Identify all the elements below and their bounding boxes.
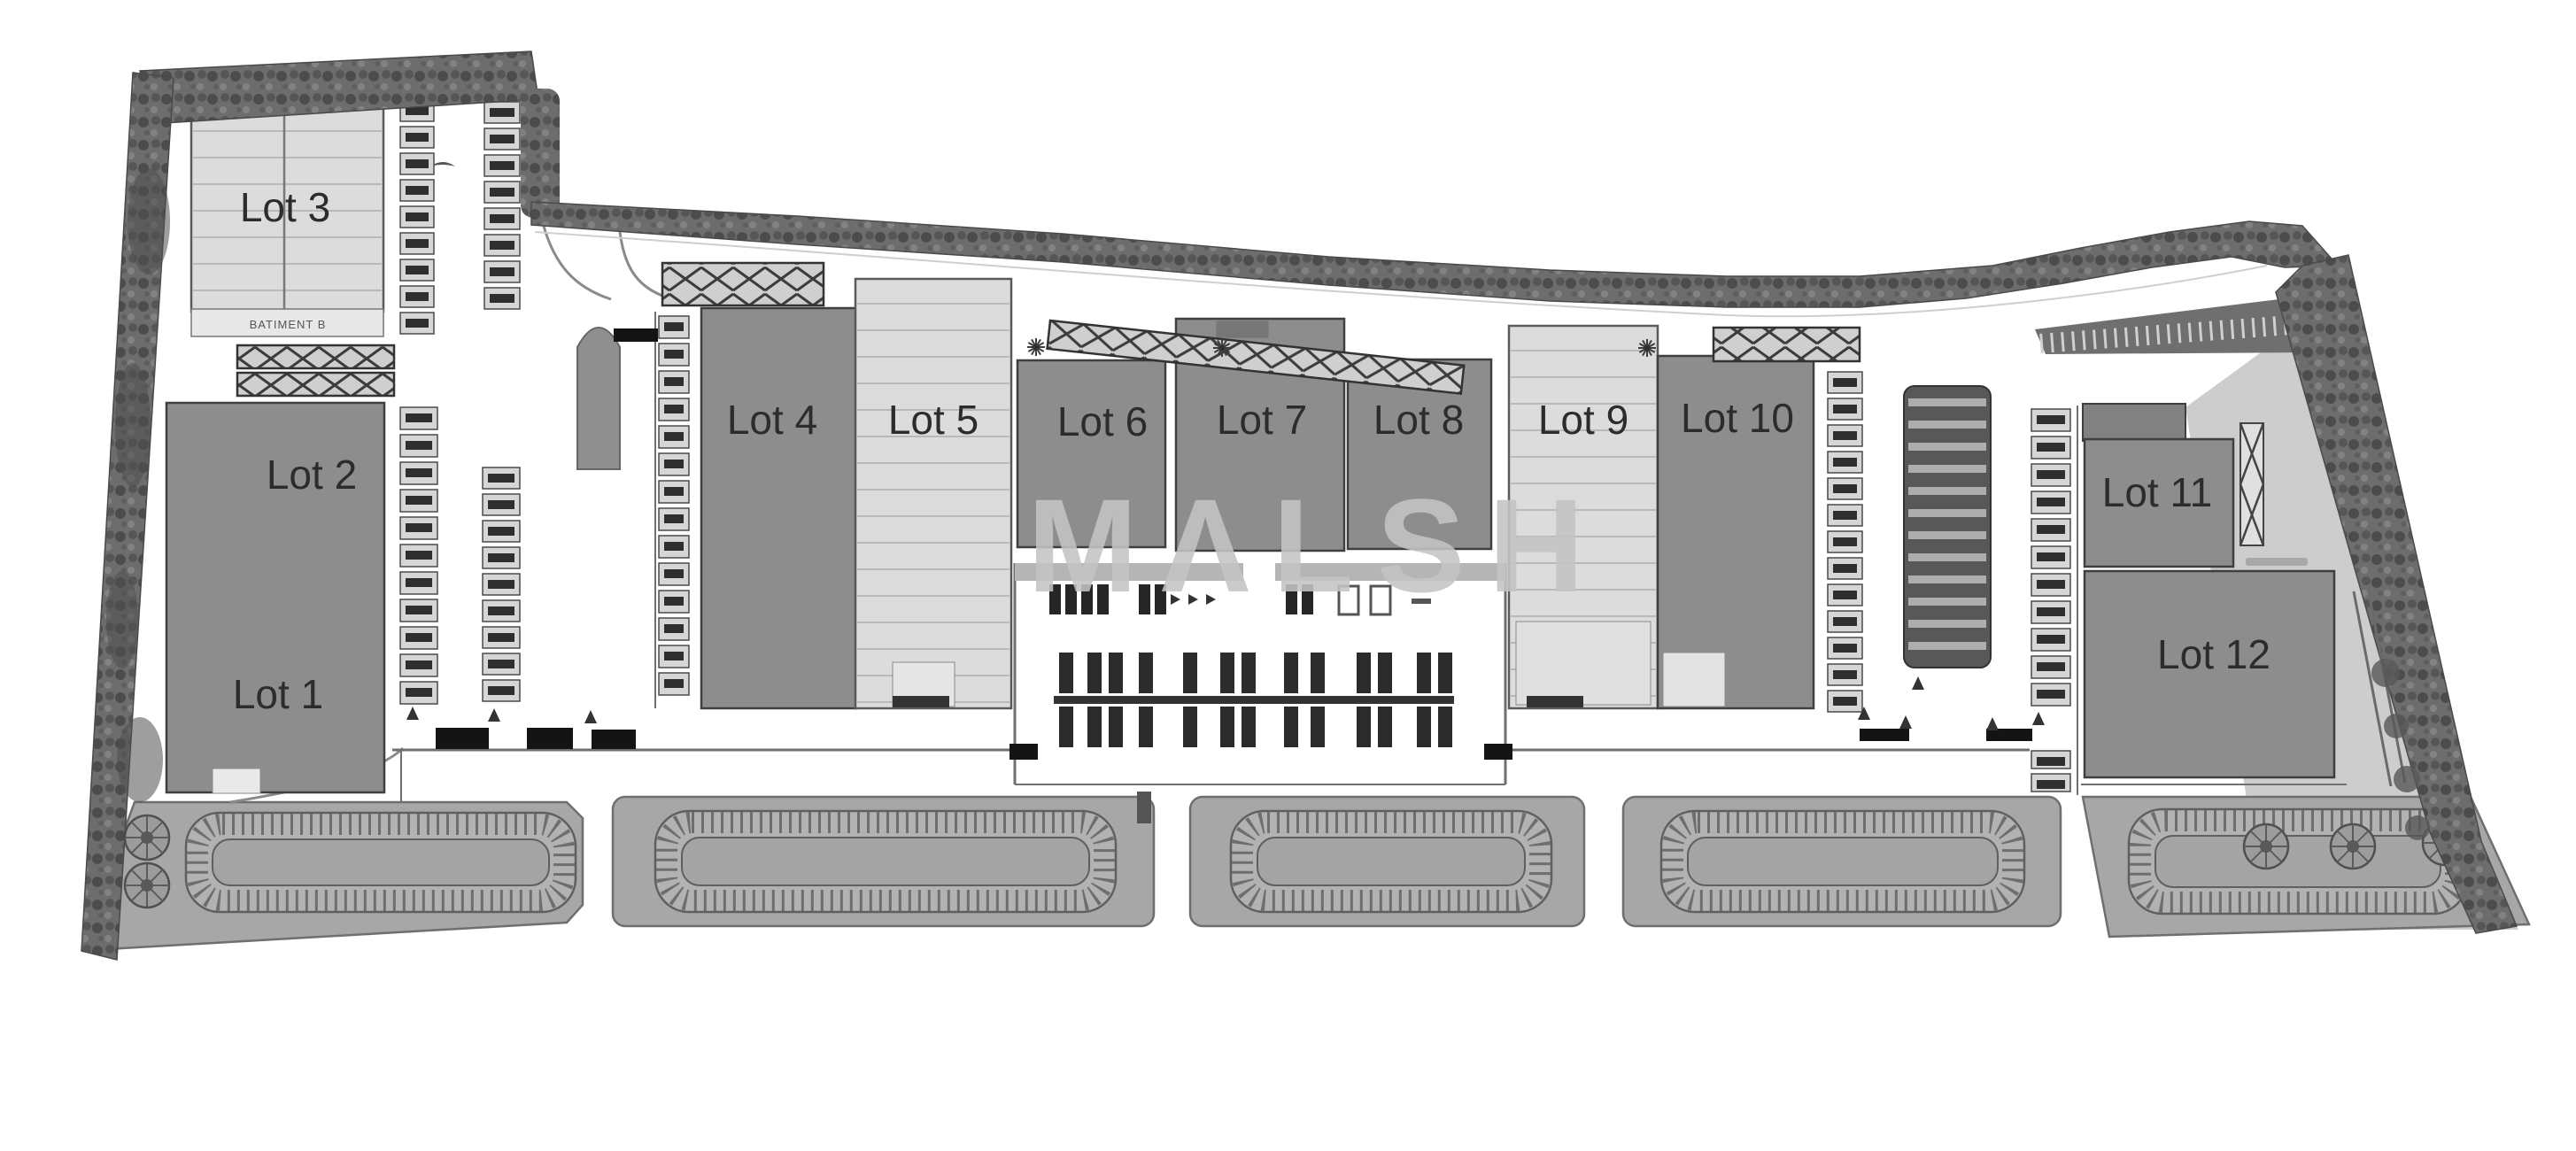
lot-label: Lot 5 xyxy=(888,397,979,443)
parked-car xyxy=(1833,670,1857,679)
small-stall xyxy=(1220,653,1234,693)
parked-car xyxy=(664,350,684,359)
small-stall xyxy=(1242,653,1256,693)
lot-label: Lot 2 xyxy=(267,452,357,498)
courtyard-mark xyxy=(1137,792,1151,823)
tree-trunk xyxy=(1644,345,1650,351)
dock-block xyxy=(1986,729,2032,741)
small-stall xyxy=(1417,653,1431,693)
tree-trunk xyxy=(1219,345,1225,351)
parked-car xyxy=(406,266,429,274)
parking-column xyxy=(400,407,437,704)
tree-blob xyxy=(2384,714,2409,738)
truss-canopy xyxy=(662,263,824,305)
small-stall xyxy=(1378,707,1392,747)
parked-car xyxy=(664,405,684,413)
island-inner xyxy=(213,839,549,885)
dock-block xyxy=(436,728,489,749)
parked-car xyxy=(406,578,432,587)
tree-blob xyxy=(115,363,151,487)
tree-blob xyxy=(2405,815,2430,840)
double-column-stall xyxy=(1908,531,1986,539)
parking-pad xyxy=(1190,797,1584,926)
pine-tree-icon xyxy=(1912,676,1924,690)
parked-car xyxy=(1833,458,1857,467)
parked-car xyxy=(406,413,432,422)
double-column-stall xyxy=(1908,465,1986,473)
double-column-stall xyxy=(1908,398,1986,406)
double-column-stall xyxy=(1908,575,1986,583)
double-column-stall xyxy=(1908,487,1986,495)
parked-car xyxy=(1833,644,1857,653)
island-inner xyxy=(1257,838,1525,885)
tree-icon xyxy=(1027,338,1045,356)
lot-5 xyxy=(855,279,1011,708)
small-stall xyxy=(1220,707,1234,747)
tree-blob xyxy=(521,89,560,218)
truss-canopy xyxy=(1713,328,1860,361)
parked-car xyxy=(1833,697,1857,706)
small-stall xyxy=(1109,653,1123,693)
tree-blob xyxy=(128,168,170,274)
parked-car xyxy=(488,553,514,562)
tree-trunk xyxy=(1033,344,1039,350)
parked-car xyxy=(406,441,432,450)
lot-label: Lot 1 xyxy=(233,671,323,717)
parked-car xyxy=(2037,552,2065,561)
pine-tree-icon xyxy=(2032,712,2045,725)
parking-column xyxy=(2031,751,2070,792)
parked-car xyxy=(488,633,514,642)
stall-spine xyxy=(1054,696,1454,704)
parked-car xyxy=(2037,498,2065,506)
pine-tree-icon xyxy=(1899,715,1912,729)
double-column-stall xyxy=(1908,443,1986,451)
tiny-annotation xyxy=(2246,558,2308,566)
parking-column xyxy=(2031,409,2070,706)
parked-car xyxy=(406,606,432,614)
tree-icon xyxy=(125,863,169,908)
street-parking-pads xyxy=(94,797,2529,949)
parked-car xyxy=(2037,635,2065,644)
parked-car xyxy=(406,133,429,142)
parked-car xyxy=(1833,564,1857,573)
parked-car xyxy=(406,523,432,532)
parked-car xyxy=(2037,470,2065,479)
x-brace-frame xyxy=(2240,423,2263,545)
dock-block xyxy=(527,728,573,749)
angled-parking-wedge xyxy=(2035,297,2313,354)
parked-car xyxy=(2037,690,2065,699)
small-stall xyxy=(1311,653,1325,693)
small-stall xyxy=(1311,707,1325,747)
parked-car xyxy=(664,514,684,523)
lot-11-notch xyxy=(2083,404,2185,441)
parked-car xyxy=(490,267,514,276)
parked-car xyxy=(488,686,514,695)
parked-car xyxy=(490,294,514,303)
parked-car xyxy=(406,292,429,301)
lot-inset xyxy=(213,769,260,793)
parked-car xyxy=(488,580,514,589)
driveway-curve xyxy=(542,220,611,299)
parked-car xyxy=(664,624,684,633)
drive-aisle-arch xyxy=(577,328,620,469)
parked-car xyxy=(406,468,432,477)
parking-column xyxy=(400,100,434,334)
parked-car xyxy=(664,652,684,660)
parked-car xyxy=(2037,607,2065,616)
small-stall xyxy=(1357,653,1371,693)
parked-car xyxy=(406,212,429,221)
parked-car xyxy=(2037,780,2065,789)
tree-blob xyxy=(106,571,138,668)
small-stall xyxy=(1087,653,1102,693)
site-plan-svg: BATIMENT B Lot 2Lot 1Lot 3Lot 4Lot 5Lot … xyxy=(0,0,2576,1151)
tree-icon xyxy=(2244,824,2288,869)
tree-icon xyxy=(125,815,169,860)
small-stall xyxy=(1059,707,1073,747)
parked-car xyxy=(406,239,429,248)
parked-car xyxy=(1833,431,1857,440)
small-stall xyxy=(1139,707,1153,747)
small-stall xyxy=(1087,707,1102,747)
lot-label: Lot 4 xyxy=(727,397,817,443)
tree-blob xyxy=(117,717,163,802)
parking-column xyxy=(484,102,520,309)
tree-trunk xyxy=(2347,840,2359,853)
parked-car xyxy=(2037,525,2065,534)
tree-trunk xyxy=(141,831,153,844)
parked-car xyxy=(406,688,432,697)
parked-car xyxy=(664,597,684,606)
island-inner xyxy=(2155,836,2441,887)
lot-label: Lot 12 xyxy=(2157,631,2270,677)
tree-trunk xyxy=(141,879,153,892)
parked-car xyxy=(664,542,684,551)
parked-car xyxy=(406,319,429,328)
driveway-curve xyxy=(620,232,662,296)
parked-car xyxy=(1833,617,1857,626)
parked-car xyxy=(490,241,514,250)
lot-4 xyxy=(701,308,857,708)
lot-4-building xyxy=(701,308,857,708)
parked-car xyxy=(2037,662,2065,671)
small-stall xyxy=(1183,707,1197,747)
parked-car xyxy=(490,188,514,197)
lot-label: Lot 7 xyxy=(1217,397,1307,443)
small-stall xyxy=(1417,707,1431,747)
parked-car xyxy=(406,496,432,505)
parking-column xyxy=(659,316,689,695)
parking-column xyxy=(1828,372,1862,712)
pine-tree-icon xyxy=(406,707,419,720)
small-stall xyxy=(1438,653,1452,693)
parked-car xyxy=(488,606,514,615)
parked-car xyxy=(1833,405,1857,413)
parked-car xyxy=(490,108,514,117)
island-inner xyxy=(682,838,1089,885)
parked-car xyxy=(1833,591,1857,599)
small-stall xyxy=(1242,707,1256,747)
small-stall xyxy=(1059,653,1073,693)
small-stall xyxy=(1357,707,1371,747)
tree-blob xyxy=(2394,766,2420,792)
parked-car xyxy=(490,161,514,170)
lot-label: Lot 3 xyxy=(240,184,330,230)
double-column-stall xyxy=(1908,620,1986,628)
parking-column xyxy=(483,467,520,701)
double-column-stall xyxy=(1908,598,1986,606)
dock-block xyxy=(1484,744,1512,760)
parked-car xyxy=(664,377,684,386)
double-column-stall xyxy=(1908,553,1986,561)
parked-car xyxy=(406,633,432,642)
dock-bar xyxy=(893,696,949,707)
small-stall xyxy=(1284,653,1298,693)
parked-car xyxy=(406,660,432,669)
pine-tree-icon xyxy=(584,710,597,723)
tree-blob xyxy=(2371,659,2400,687)
small-stall xyxy=(1183,653,1197,693)
parked-car xyxy=(664,679,684,688)
small-stall xyxy=(1284,707,1298,747)
batiment-label: BATIMENT B xyxy=(250,318,327,331)
parked-car xyxy=(406,186,429,195)
tree-icon xyxy=(2331,824,2375,869)
lot-inset xyxy=(1663,653,1725,707)
parking-pad xyxy=(94,802,583,949)
parked-car xyxy=(1833,537,1857,546)
parked-car xyxy=(664,569,684,578)
site-plan: BATIMENT B Lot 2Lot 1Lot 3Lot 4Lot 5Lot … xyxy=(0,0,2576,1151)
parked-car xyxy=(490,214,514,223)
parked-car xyxy=(488,474,514,483)
dock-block xyxy=(592,730,636,749)
lot-label: Lot 11 xyxy=(2102,469,2212,515)
parked-car xyxy=(664,322,684,331)
lot-label: Lot 8 xyxy=(1373,397,1464,443)
parked-car xyxy=(664,487,684,496)
dock-block xyxy=(614,328,658,342)
parked-car xyxy=(406,551,432,560)
dock-block xyxy=(1860,729,1909,741)
parking-pad xyxy=(613,797,1154,926)
parked-car xyxy=(488,660,514,668)
small-stall xyxy=(1378,653,1392,693)
lot-inset xyxy=(1216,321,1269,338)
tree-trunk xyxy=(2260,840,2272,853)
parked-car xyxy=(2037,757,2065,766)
parked-car xyxy=(664,460,684,468)
small-stall xyxy=(1438,707,1452,747)
double-column-stall xyxy=(1908,642,1986,650)
parked-car xyxy=(2037,580,2065,589)
parked-car xyxy=(488,527,514,536)
pine-tree-icon xyxy=(1986,717,1999,730)
parked-car xyxy=(1833,511,1857,520)
lot-label: Lot 6 xyxy=(1057,398,1148,444)
parked-car xyxy=(1833,378,1857,387)
pine-tree-icon xyxy=(488,708,500,722)
parked-car xyxy=(1833,484,1857,493)
watermark: MΛLSH xyxy=(1027,471,1607,620)
lot-label: Lot 9 xyxy=(1538,397,1628,443)
small-stall xyxy=(1109,707,1123,747)
parked-car xyxy=(2037,443,2065,452)
truss-canopy xyxy=(237,345,394,368)
watermark-text: MΛLSH xyxy=(1027,471,1607,620)
double-column-stall xyxy=(1908,421,1986,429)
parked-car xyxy=(2037,415,2065,424)
lot-inset xyxy=(1516,622,1651,705)
parked-car xyxy=(664,432,684,441)
island-inner xyxy=(1688,838,1998,885)
parking-pad xyxy=(1623,797,2061,926)
truss-canopy xyxy=(237,373,394,396)
double-column-stall xyxy=(1908,509,1986,517)
parked-car xyxy=(490,135,514,143)
parked-car xyxy=(488,500,514,509)
lot-label: Lot 10 xyxy=(1681,395,1794,441)
double-parking-column xyxy=(1904,386,1991,668)
lot-5-building xyxy=(855,279,1011,708)
dock-block xyxy=(1010,744,1038,760)
dock-bar xyxy=(1527,696,1583,707)
small-stall xyxy=(1139,653,1153,693)
parked-car xyxy=(406,159,429,168)
